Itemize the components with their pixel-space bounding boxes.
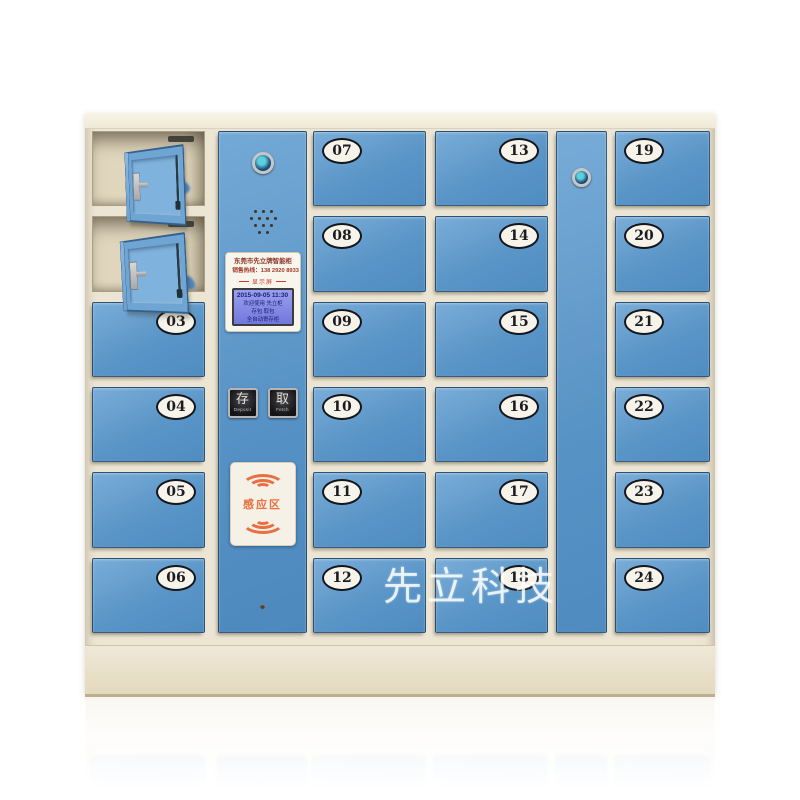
locker-door-22: 22 (615, 387, 710, 462)
door-number-badge: 24 (624, 565, 664, 591)
locker-door-15: 15 (435, 302, 548, 377)
locker-door-17: 17 (435, 472, 548, 547)
door-number-badge: 16 (499, 394, 539, 420)
deposit-button-en: Deposit (234, 407, 251, 413)
locker-door-04: 04 (92, 387, 205, 462)
door-number-badge: 13 (499, 138, 539, 164)
open-door-bottom (123, 232, 190, 314)
door-number-badge: 15 (499, 309, 539, 335)
locker-door-07: 07 (313, 131, 426, 206)
locker-door-21: 21 (615, 302, 710, 377)
hotline-text: 销售热线：138 2920 8933 (232, 267, 294, 275)
locker-door-08: 08 (313, 216, 426, 291)
locker-door-05: 05 (92, 472, 205, 547)
fetch-button: 取 Fetch (268, 388, 298, 418)
lcd-screen: 2015-09-05 11:30 欢迎使用 先立柜 存包 取包 全自动寄存柜 (232, 288, 294, 326)
key-button-row: 存 Deposit 取 Fetch (228, 388, 298, 418)
locker-door-13: 13 (435, 131, 548, 206)
floor-reflection: 03040506 东莞市先立牌智能柜 销售热线：138 2920 8933 显示… (85, 697, 715, 797)
screen-label-text: 显示屏 (252, 277, 273, 286)
rfid-waves-icon (241, 474, 285, 493)
door-number-badge: 10 (322, 394, 362, 420)
rfid-sensing-pad: 感应区 (230, 462, 296, 546)
locker-door-06: 06 (92, 558, 205, 633)
locker-door-09: 09 (313, 302, 426, 377)
locker-door-16: 16 (435, 387, 548, 462)
door-number-badge: 09 (322, 309, 362, 335)
rfid-waves-icon (241, 515, 285, 534)
lcd-line: 全自动寄存柜 (236, 316, 288, 323)
screen-label: 显示屏 (228, 277, 298, 286)
tall-narrow-door (556, 131, 607, 633)
door-number-badge: 05 (156, 479, 196, 505)
locker-door-23: 23 (615, 472, 710, 547)
door-latch-icon (129, 261, 138, 289)
cabinet-base (85, 645, 715, 697)
door-number-badge: 19 (624, 138, 664, 164)
panel-lock-icon (252, 152, 274, 174)
door-stay (168, 136, 194, 142)
door-number-badge: 20 (624, 223, 664, 249)
door-number-badge: 21 (624, 309, 664, 335)
fetch-button-en: Fetch (276, 407, 289, 413)
locker-door-14: 14 (435, 216, 548, 291)
door-number-badge: 23 (624, 479, 664, 505)
door-number-badge: 06 (156, 565, 196, 591)
narrow-door-column (556, 129, 607, 639)
open-door-top (127, 144, 187, 226)
locker-door-10: 10 (313, 387, 426, 462)
screw-dot (260, 604, 265, 609)
brand-text: 东莞市先立牌智能柜 (230, 257, 294, 265)
control-panel-column: 东莞市先立牌智能柜 销售热线：138 2920 8933 显示屏 2015-09… (218, 129, 307, 639)
narrow-door-lock-icon (572, 168, 591, 187)
info-plate: 东莞市先立牌智能柜 销售热线：138 2920 8933 显示屏 2015-09… (225, 252, 301, 332)
door-column-c: 192021222324 (615, 129, 710, 639)
door-number-badge: 14 (499, 223, 539, 249)
door-number-badge: 17 (499, 479, 539, 505)
door-latch-icon (133, 172, 141, 200)
speaker-grille-icon (248, 210, 278, 236)
lcd-line: 欢迎使用 先立柜 (236, 300, 288, 307)
locker-door-20: 20 (615, 216, 710, 291)
lcd-line: 存包 取包 (236, 308, 288, 315)
locker-door-24: 24 (615, 558, 710, 633)
door-number-badge: 22 (624, 394, 664, 420)
door-number-badge: 07 (322, 138, 362, 164)
watermark-text: 先立科技 (383, 556, 559, 612)
door-number-badge: 04 (156, 394, 196, 420)
lcd-datetime: 2015-09-05 11:30 (234, 292, 292, 300)
locker-door-11: 11 (313, 472, 426, 547)
door-number-badge: 11 (322, 479, 362, 505)
door-number-badge: 12 (322, 565, 362, 591)
fetch-button-zh: 取 (276, 393, 289, 407)
product-photo-smart-locker: 03040506 东莞市先立牌智能柜 销售热线：138 2920 8933 显示… (0, 0, 800, 800)
deposit-button: 存 Deposit (228, 388, 258, 418)
cabinet-top-edge (85, 113, 715, 129)
deposit-button-zh: 存 (236, 393, 249, 407)
control-panel: 东莞市先立牌智能柜 销售热线：138 2920 8933 显示屏 2015-09… (218, 131, 307, 633)
door-number-badge: 08 (322, 223, 362, 249)
locker-door-19: 19 (615, 131, 710, 206)
